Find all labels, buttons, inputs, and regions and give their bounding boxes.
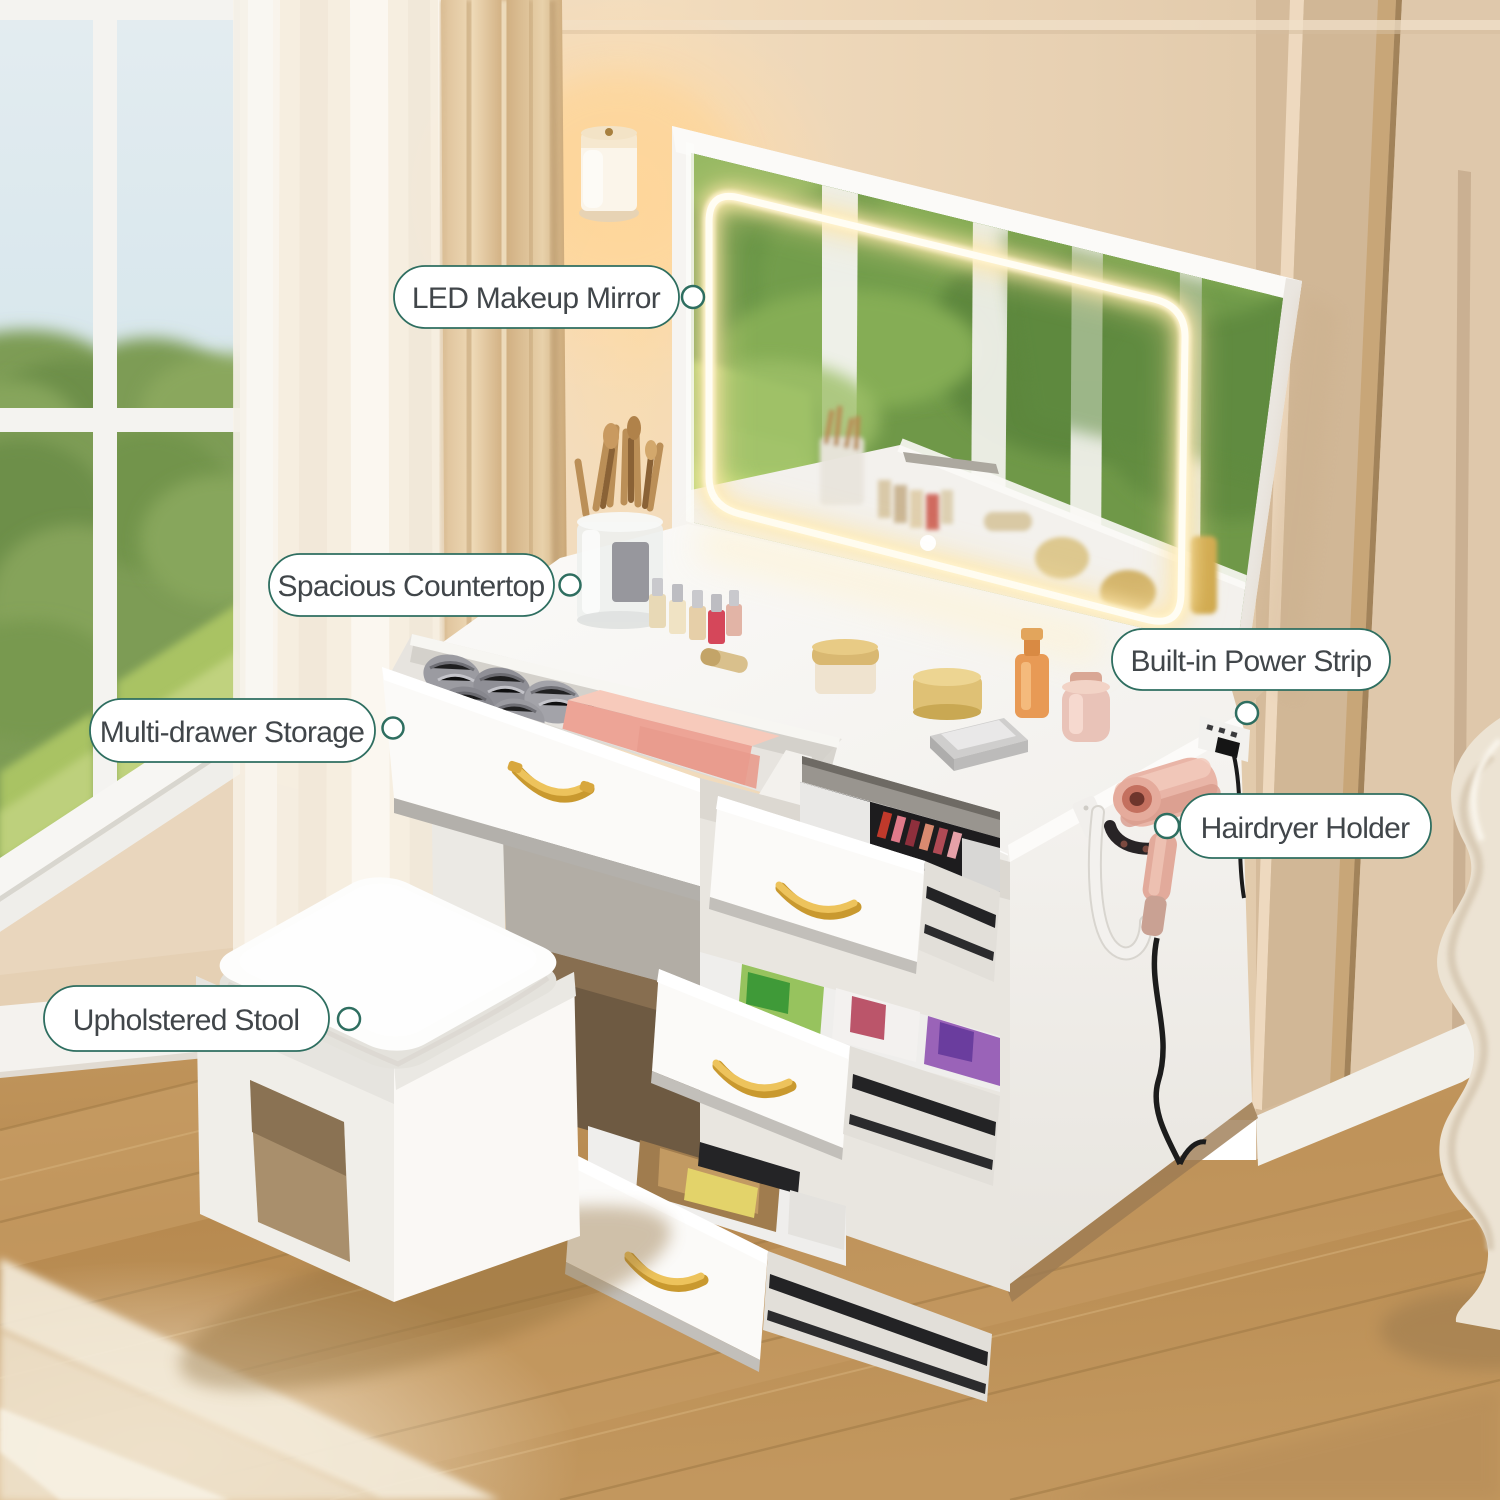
svg-text:Built-in Power Strip: Built-in Power Strip	[1130, 645, 1371, 678]
svg-text:LED Makeup Mirror: LED Makeup Mirror	[412, 282, 661, 315]
svg-text:Hairdryer Holder: Hairdryer Holder	[1201, 812, 1411, 845]
svg-text:Spacious Countertop: Spacious Countertop	[278, 570, 545, 603]
svg-text:Multi-drawer Storage: Multi-drawer Storage	[100, 716, 364, 749]
svg-text:Upholstered Stool: Upholstered Stool	[73, 1004, 300, 1037]
